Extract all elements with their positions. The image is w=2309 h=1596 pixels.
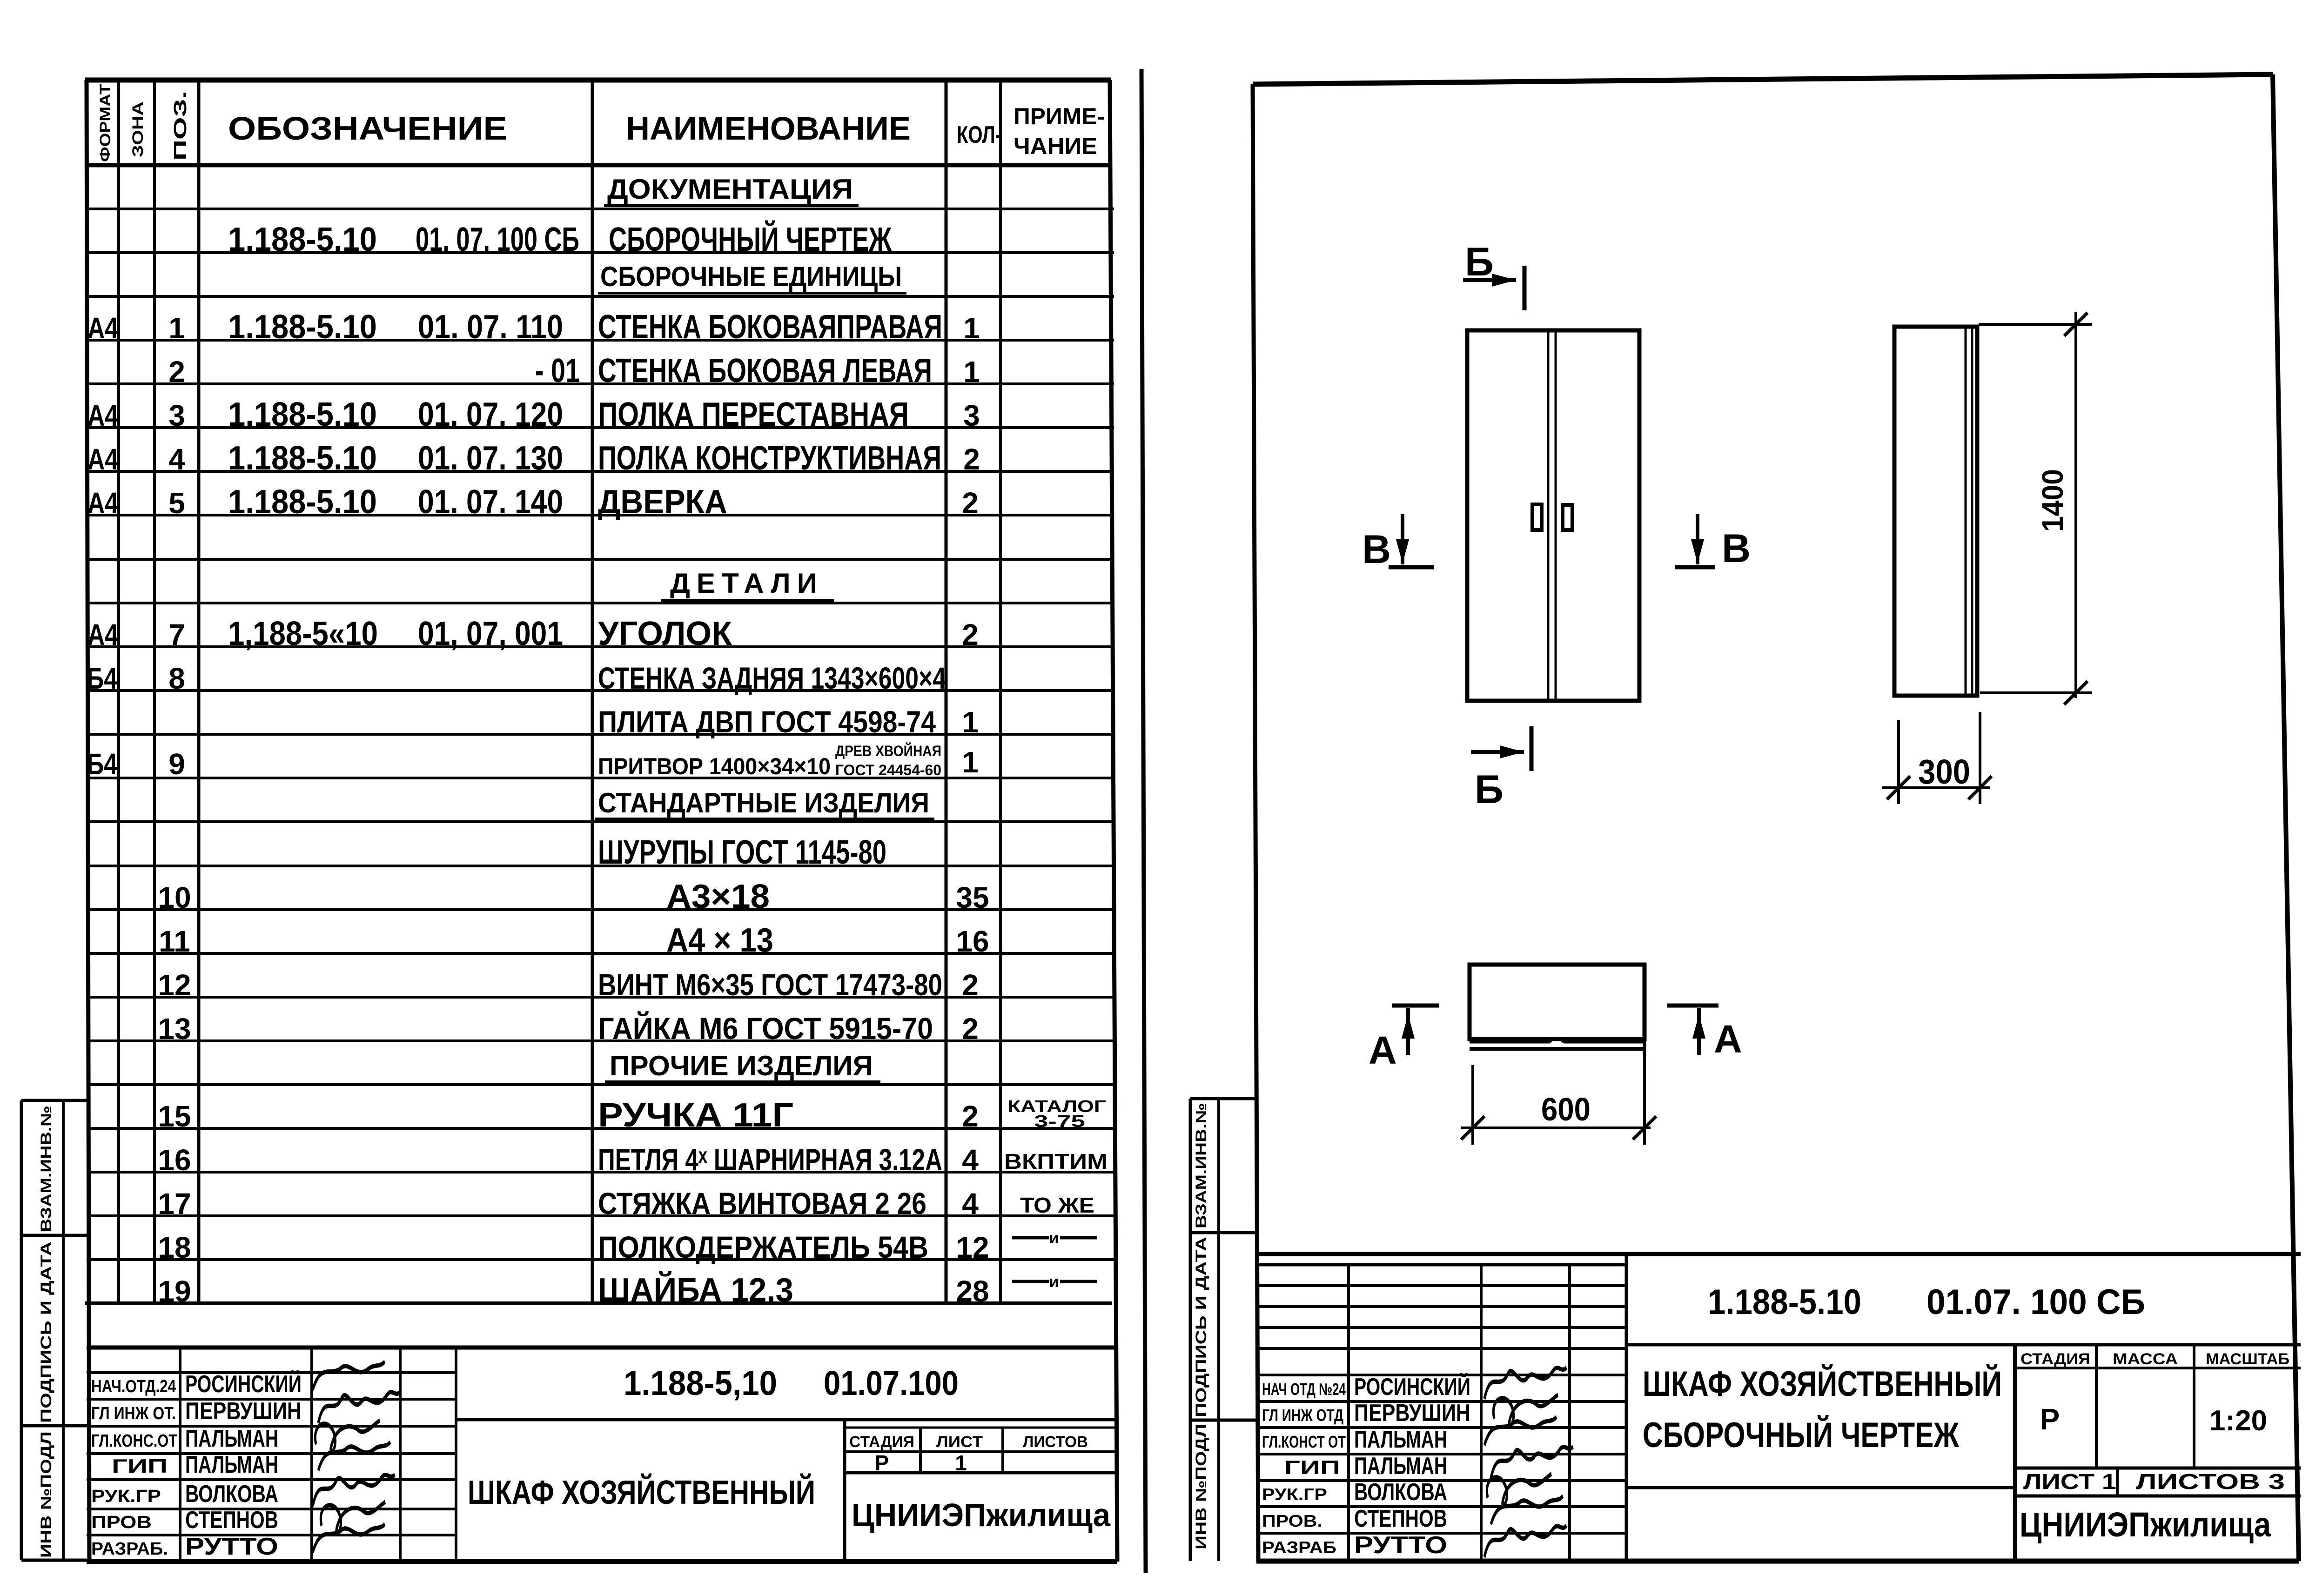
svg-text:ГИП: ГИП [1284,1456,1340,1478]
svg-text:УГОЛОК: УГОЛОК [598,615,732,652]
svg-text:ПОЛКА КОНСТРУКТИВНАЯ: ПОЛКА КОНСТРУКТИВНАЯ [598,440,941,477]
svg-text:9: 9 [168,747,185,781]
svg-text:3: 3 [168,399,185,432]
svg-text:12: 12 [956,1231,989,1264]
svg-text:3-75: 3-75 [1034,1112,1085,1131]
svg-text:ФОРМАТ: ФОРМАТ [97,83,114,162]
svg-text:ЧАНИЕ: ЧАНИЕ [1014,133,1097,159]
svg-text:ГЛ.КОНСТ ОТ: ГЛ.КОНСТ ОТ [1262,1432,1346,1451]
svg-text:ЦНИИЭПжилища: ЦНИИЭПжилища [2020,1505,2271,1544]
svg-text:и: и [1049,1273,1059,1291]
svg-text:12: 12 [158,968,191,1002]
svg-text:ГОСТ 24454-60: ГОСТ 24454-60 [835,762,941,778]
svg-text:ПАЛЬМАН: ПАЛЬМАН [185,1451,278,1478]
svg-text:ЦНИИЭПжилища: ЦНИИЭПжилища [852,1497,1111,1533]
svg-text:ВОЛКОВА: ВОЛКОВА [185,1481,278,1508]
svg-text:ЛИСТОВ 3: ЛИСТОВ 3 [2136,1469,2285,1494]
svg-text:ВЗАМ.ИНВ.№: ВЗАМ.ИНВ.№ [38,1106,54,1232]
svg-text:СБОРОЧНЫЙ ЧЕРТЕЖ: СБОРОЧНЫЙ ЧЕРТЕЖ [609,220,892,258]
svg-text:А4: А4 [87,399,118,432]
svg-text:01. 07. 140: 01. 07. 140 [418,483,563,521]
svg-text:5: 5 [168,486,185,520]
svg-text:ЛИСТОВ: ЛИСТОВ [1023,1433,1088,1451]
svg-text:РОСИНСКИЙ: РОСИНСКИЙ [185,1370,302,1398]
svg-text:СТЕПНОВ: СТЕПНОВ [1354,1505,1447,1532]
svg-text:Б: Б [1465,240,1494,284]
svg-text:01, 07, 001: 01, 07, 001 [418,615,563,652]
svg-text:17: 17 [158,1187,191,1220]
svg-text:СТАДИЯ: СТАДИЯ [2020,1350,2090,1368]
svg-text:1: 1 [168,311,185,345]
svg-text:ПАЛЬМАН: ПАЛЬМАН [1354,1453,1447,1480]
svg-text:РУТТО: РУТТО [1354,1532,1447,1559]
svg-text:11: 11 [159,925,190,958]
svg-text:ДРЕВ ХВОЙНАЯ: ДРЕВ ХВОЙНАЯ [835,743,941,759]
svg-text:ПАЛЬМАН: ПАЛЬМАН [185,1425,278,1452]
svg-text:15: 15 [158,1100,191,1133]
svg-text:28: 28 [956,1274,989,1308]
svg-text:МАСШТАБ: МАСШТАБ [2206,1350,2289,1368]
svg-text:1400: 1400 [2036,469,2069,532]
svg-text:1.188-5.10: 1.188-5.10 [228,483,377,521]
svg-text:10: 10 [158,881,191,914]
svg-text:и: и [1049,1229,1059,1247]
svg-text:ШУРУПЫ ГОСТ 1145-80: ШУРУПЫ ГОСТ 1145-80 [598,834,886,871]
svg-text:1: 1 [962,745,979,779]
svg-text:ПОЛКА ПЕРЕСТАВНАЯ: ПОЛКА ПЕРЕСТАВНАЯ [598,396,909,433]
svg-text:01. 07. 130: 01. 07. 130 [418,440,563,477]
svg-text:ГЛ ИНЖ ОТД: ГЛ ИНЖ ОТД [1262,1406,1343,1425]
svg-text:ЛИСТ: ЛИСТ [936,1433,983,1451]
svg-text:ДЕТАЛИ: ДЕТАЛИ [670,568,824,599]
svg-text:2: 2 [168,355,185,389]
svg-text:ЛИСТ 1: ЛИСТ 1 [2023,1469,2116,1494]
svg-text:СТАНДАРТНЫЕ ИЗДЕЛИЯ: СТАНДАРТНЫЕ ИЗДЕЛИЯ [598,787,929,818]
svg-text:КОЛ-: КОЛ- [957,121,1001,148]
svg-text:ИНВ №ПОДЛ: ИНВ №ПОДЛ [1193,1424,1209,1549]
svg-text:В: В [1362,527,1391,572]
svg-text:1: 1 [962,705,979,739]
svg-text:300: 300 [1918,752,1970,791]
svg-text:ПАЛЬМАН: ПАЛЬМАН [1354,1426,1447,1453]
svg-text:СТЕНКА ЗАДНЯЯ 1343×600×4: СТЕНКА ЗАДНЯЯ 1343×600×4 [598,661,946,695]
svg-text:1.188-5.10: 1.188-5.10 [228,308,377,346]
svg-text:ГАЙКА М6 ГОСТ 5915-70: ГАЙКА М6 ГОСТ 5915-70 [598,1011,933,1046]
svg-text:Б: Б [1475,767,1504,812]
svg-text:3: 3 [963,399,980,432]
svg-text:РОСИНСКИЙ: РОСИНСКИЙ [1354,1373,1470,1401]
svg-text:18: 18 [158,1231,191,1264]
svg-text:1:20: 1:20 [2209,1405,2267,1437]
svg-text:А: А [1369,1028,1397,1072]
svg-text:- 01: - 01 [535,352,580,389]
svg-text:ПОЛКОДЕРЖАТЕЛЬ 54В: ПОЛКОДЕРЖАТЕЛЬ 54В [598,1230,928,1264]
svg-text:2: 2 [962,486,979,520]
svg-text:СБОРОЧНЫЕ ЕДИНИЦЫ: СБОРОЧНЫЕ ЕДИНИЦЫ [600,261,902,292]
svg-text:2: 2 [963,443,980,476]
svg-text:16: 16 [956,925,989,958]
svg-text:ПРОВ: ПРОВ [91,1513,152,1532]
svg-text:А4: А4 [87,443,118,476]
svg-text:ПЕРВУШИН: ПЕРВУШИН [185,1398,302,1425]
svg-text:ДОКУМЕНТАЦИЯ: ДОКУМЕНТАЦИЯ [607,174,853,205]
svg-text:ПРОВ.: ПРОВ. [1262,1511,1322,1530]
svg-text:ВИНТ М6×35 ГОСТ 17473-80: ВИНТ М6×35 ГОСТ 17473-80 [598,967,942,1002]
svg-text:А4 × 13: А4 × 13 [666,922,773,959]
svg-text:1.188-5,10: 1.188-5,10 [624,1364,777,1402]
svg-text:ПЛИТА ДВП ГОСТ 4598-74: ПЛИТА ДВП ГОСТ 4598-74 [598,704,936,739]
svg-text:19: 19 [158,1274,191,1308]
svg-text:1: 1 [955,1451,967,1475]
svg-text:НАЧ.ОТД.24: НАЧ.ОТД.24 [91,1377,176,1396]
svg-text:ВКПТИМ: ВКПТИМ [1004,1149,1108,1174]
svg-text:01. 07. 110: 01. 07. 110 [418,308,563,346]
svg-text:1.188-5.10: 1.188-5.10 [1708,1282,1861,1322]
svg-text:7: 7 [168,618,185,651]
svg-text:ДВЕРКА: ДВЕРКА [598,483,727,521]
svg-text:РУЧКА 11Г: РУЧКА 11Г [598,1097,793,1134]
svg-text:ГЛ ИНЖ ОТ.: ГЛ ИНЖ ОТ. [91,1404,176,1423]
svg-text:ПРОЧИЕ ИЗДЕЛИЯ: ПРОЧИЕ ИЗДЕЛИЯ [610,1050,873,1081]
svg-text:2: 2 [962,618,979,651]
svg-text:1.188-5.10: 1.188-5.10 [228,396,377,433]
svg-text:РУТТО: РУТТО [185,1533,278,1560]
svg-text:ВЗАМ.ИНВ.№: ВЗАМ.ИНВ.№ [1193,1103,1209,1228]
svg-text:4: 4 [962,1187,979,1220]
svg-text:2: 2 [962,1012,979,1046]
svg-text:1: 1 [963,355,980,389]
svg-text:ШКАФ ХОЗЯЙСТВЕННЫЙ: ШКАФ ХОЗЯЙСТВЕННЫЙ [468,1473,815,1511]
svg-text:ОБОЗНАЧЕНИЕ: ОБОЗНАЧЕНИЕ [228,110,507,147]
svg-text:МАССА: МАССА [2113,1350,2178,1368]
svg-text:1.188-5.10: 1.188-5.10 [228,221,377,258]
svg-text:ШАЙБА 12.3: ШАЙБА 12.3 [598,1271,793,1309]
svg-text:ПЕРВУШИН: ПЕРВУШИН [1354,1400,1470,1427]
svg-text:Б4: Б4 [87,662,117,695]
svg-text:РУК.ГР: РУК.ГР [1262,1485,1327,1504]
svg-text:ПОЗ.: ПОЗ. [171,91,190,161]
svg-text:ШКАФ ХОЗЯЙСТВЕННЫЙ: ШКАФ ХОЗЯЙСТВЕННЫЙ [1643,1364,2002,1404]
svg-text:СТАДИЯ: СТАДИЯ [849,1433,914,1451]
svg-text:НАИМЕНОВАНИЕ: НАИМЕНОВАНИЕ [626,110,911,147]
svg-text:НАЧ ОТД №24: НАЧ ОТД №24 [1262,1380,1346,1399]
svg-text:ПРИМЕ-: ПРИМЕ- [1014,103,1105,129]
svg-text:А3×18: А3×18 [666,878,770,915]
svg-text:ПОДПИСЬ И ДАТА: ПОДПИСЬ И ДАТА [38,1241,54,1423]
svg-text:СБОРОЧНЫЙ ЧЕРТЕЖ: СБОРОЧНЫЙ ЧЕРТЕЖ [1643,1415,1960,1455]
svg-text:ИНВ №ПОДЛ: ИНВ №ПОДЛ [38,1431,54,1558]
svg-text:СТЕНКА БОКОВАЯ ЛЕВАЯ: СТЕНКА БОКОВАЯ ЛЕВАЯ [598,352,932,389]
svg-text:В: В [1722,526,1751,571]
svg-text:Б4: Б4 [87,747,117,781]
svg-text:ТО ЖЕ: ТО ЖЕ [1020,1193,1094,1217]
svg-text:ГИП: ГИП [112,1455,168,1477]
svg-text:СТЕПНОВ: СТЕПНОВ [185,1507,278,1534]
svg-text:ВОЛКОВА: ВОЛКОВА [1354,1479,1447,1506]
svg-text:РУК.ГР: РУК.ГР [91,1487,161,1506]
svg-text:А4: А4 [87,311,118,345]
svg-text:Р: Р [2040,1402,2060,1436]
svg-text:РАЗРАБ.: РАЗРАБ. [91,1539,168,1559]
svg-text:8: 8 [168,662,185,695]
svg-text:ПЕТЛЯ 4ˣ ШАРНИРНАЯ 3.12А: ПЕТЛЯ 4ˣ ШАРНИРНАЯ 3.12А [598,1142,942,1177]
svg-text:4: 4 [168,443,185,476]
svg-text:СТЕНКА БОКОВАЯПРАВАЯ: СТЕНКА БОКОВАЯПРАВАЯ [598,308,942,346]
svg-text:1,188-5«10: 1,188-5«10 [228,615,378,652]
svg-text:01.07.100: 01.07.100 [824,1364,959,1402]
svg-text:01.07. 100 СБ: 01.07. 100 СБ [1926,1282,2145,1322]
svg-text:13: 13 [158,1012,191,1046]
svg-text:35: 35 [956,881,989,914]
svg-text:16: 16 [158,1143,191,1177]
svg-text:РАЗРАБ: РАЗРАБ [1262,1538,1336,1557]
svg-text:ЗОНА: ЗОНА [129,101,146,157]
svg-text:А4: А4 [87,486,118,520]
svg-text:4: 4 [962,1143,979,1177]
svg-text:600: 600 [1541,1091,1591,1127]
svg-text:1: 1 [963,311,980,345]
svg-text:Р: Р [875,1451,889,1475]
svg-text:ГЛ.КОНС.ОТ: ГЛ.КОНС.ОТ [91,1431,177,1451]
svg-text:01. 07. 120: 01. 07. 120 [418,396,563,433]
svg-text:01. 07. 100 СБ: 01. 07. 100 СБ [416,221,579,258]
svg-text:ПРИТВОР 1400×34×10: ПРИТВОР 1400×34×10 [598,753,831,779]
svg-text:СТЯЖКА ВИНТОВАЯ 2 26: СТЯЖКА ВИНТОВАЯ 2 26 [598,1186,926,1220]
svg-text:А4: А4 [87,618,118,651]
svg-text:2: 2 [962,968,979,1002]
svg-text:2: 2 [962,1100,979,1133]
svg-text:ПОДПИСЬ И ДАТА: ПОДПИСЬ И ДАТА [1193,1237,1209,1417]
svg-text:1.188-5.10: 1.188-5.10 [228,440,377,477]
svg-text:А: А [1714,1017,1742,1061]
